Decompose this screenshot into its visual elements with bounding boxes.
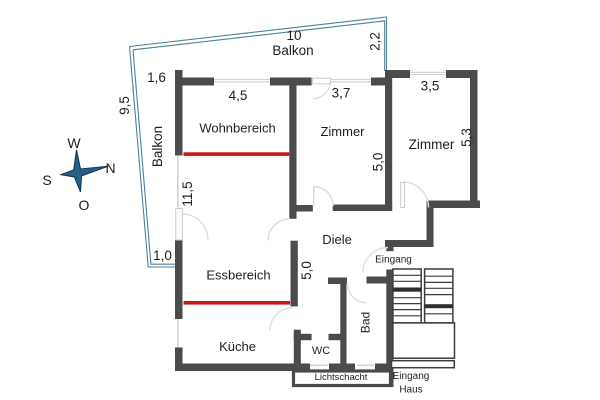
svg-text:N: N	[105, 160, 115, 176]
svg-text:Haus: Haus	[399, 385, 422, 396]
svg-text:5,3: 5,3	[459, 128, 474, 147]
svg-text:5,0: 5,0	[371, 153, 386, 172]
svg-text:11,5: 11,5	[180, 181, 195, 206]
svg-text:Balkon: Balkon	[272, 43, 313, 58]
svg-text:5,0: 5,0	[299, 261, 314, 280]
svg-text:Bad: Bad	[359, 312, 373, 333]
svg-text:Zimmer: Zimmer	[320, 124, 365, 139]
svg-text:Wohnbereich: Wohnbereich	[199, 121, 275, 136]
svg-text:Eingang: Eingang	[375, 255, 412, 266]
svg-text:10: 10	[286, 28, 301, 43]
svg-text:1,0: 1,0	[153, 248, 172, 263]
svg-text:O: O	[79, 197, 90, 213]
svg-text:Essbereich: Essbereich	[206, 268, 270, 283]
svg-text:Zimmer: Zimmer	[409, 137, 455, 152]
svg-text:WC: WC	[312, 345, 330, 357]
svg-text:1,6: 1,6	[147, 70, 166, 85]
svg-text:Küche: Küche	[219, 339, 256, 354]
svg-text:Balkon: Balkon	[150, 126, 165, 167]
svg-text:9,5: 9,5	[117, 96, 132, 115]
svg-text:2,2: 2,2	[368, 32, 383, 51]
svg-text:3,5: 3,5	[421, 79, 440, 94]
svg-text:W: W	[67, 135, 81, 151]
svg-text:4,5: 4,5	[229, 88, 248, 103]
svg-text:3,7: 3,7	[332, 86, 351, 101]
svg-text:Diele: Diele	[322, 232, 352, 247]
svg-text:Lichtschacht: Lichtschacht	[315, 372, 368, 383]
svg-text:S: S	[42, 172, 51, 188]
svg-text:Eingang: Eingang	[393, 371, 430, 382]
